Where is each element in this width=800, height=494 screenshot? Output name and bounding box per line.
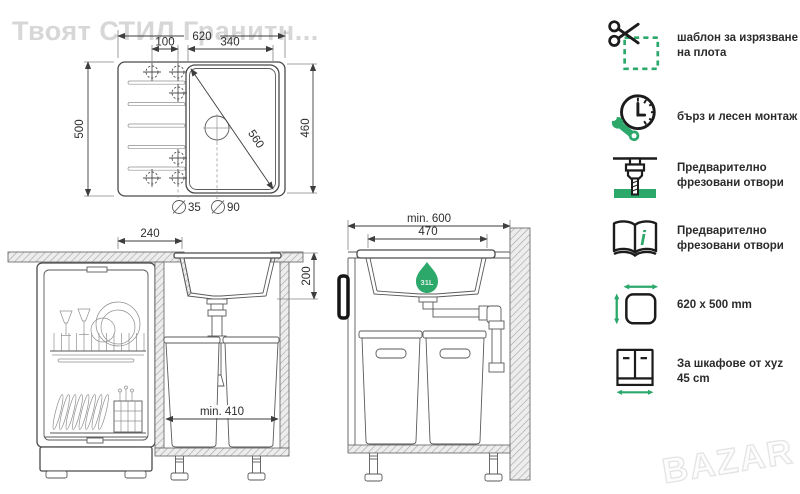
dim-100-label: 100 bbox=[155, 37, 174, 49]
features-panel: шаблон за изрязване на плота bbox=[602, 0, 800, 494]
volume-badge: 31L bbox=[416, 262, 438, 293]
front-section-drawing: 240 bbox=[8, 228, 318, 480]
feature-manual: i Предварително фрезовани отвори bbox=[602, 208, 800, 270]
feature-premilled-holes: Предварително фрезовани отвори bbox=[602, 146, 800, 206]
dia-90-label: 90 bbox=[227, 202, 240, 214]
clock-wrench-icon bbox=[602, 90, 668, 144]
dim-470-label: 470 bbox=[418, 226, 437, 238]
countertop-left bbox=[8, 252, 184, 262]
feature-text: бърз и лесен монтаж bbox=[677, 110, 799, 125]
feature-quick-install: бърз и лесен монтаж bbox=[602, 86, 800, 148]
feature-text: Предварително фрезовани отвори bbox=[677, 161, 799, 191]
technical-drawing: 560 620 100 340 bbox=[0, 0, 600, 494]
dim-460-label: 460 bbox=[300, 118, 312, 137]
feature-cabinet-size: За шкафове от xyz 45 cm bbox=[602, 340, 800, 404]
tap-hole-diameter: 35 bbox=[173, 201, 201, 215]
waste-bins-side bbox=[359, 331, 486, 444]
cabinet-legs-front bbox=[171, 456, 265, 480]
waste-bins-front bbox=[164, 337, 279, 447]
feature-text: 620 x 500 mm bbox=[677, 298, 799, 313]
dim-500-label: 500 bbox=[74, 119, 86, 138]
dim-340-label: 340 bbox=[220, 37, 239, 49]
manual-book-icon: i bbox=[602, 216, 668, 262]
cabinet-size-icon bbox=[602, 344, 668, 400]
cabinet-door-side bbox=[339, 258, 355, 445]
cabinet-bottom-side bbox=[348, 445, 510, 453]
side-section-drawing: min. 600 470 bbox=[339, 213, 530, 481]
side-wall bbox=[510, 228, 530, 480]
dim-min410-label: min. 410 bbox=[200, 406, 244, 418]
dim-width: 620 bbox=[118, 30, 285, 58]
feature-text: За шкафове от xyz 45 cm bbox=[677, 357, 799, 387]
feature-dimensions: 620 x 500 mm bbox=[602, 276, 800, 334]
info-letter: i bbox=[640, 228, 646, 250]
door-handle bbox=[339, 276, 348, 318]
cabinet-left-wall bbox=[155, 262, 164, 448]
feature-cutting-template: шаблон за изрязване на плота bbox=[602, 8, 800, 84]
dim-min600-label: min. 600 bbox=[407, 213, 451, 225]
scissors-template-icon bbox=[602, 17, 668, 75]
dishwasher-base bbox=[40, 447, 152, 471]
top-view-drawing: 560 620 100 340 bbox=[74, 30, 317, 214]
dimensions-icon bbox=[602, 279, 668, 331]
cabinet-legs-side bbox=[365, 453, 502, 481]
feature-text: Предварително фрезовани отвори bbox=[677, 224, 799, 254]
cabinet-bottom bbox=[155, 448, 289, 456]
drain-hole-diameter: 90 bbox=[212, 201, 240, 215]
dim-bowl-width-side: 470 bbox=[368, 226, 487, 248]
dim-620-label: 620 bbox=[192, 31, 211, 43]
dim-drainer-offset: 240 bbox=[118, 228, 182, 249]
dim-depth: 500 bbox=[74, 62, 114, 196]
dim-240-label: 240 bbox=[140, 228, 159, 240]
cabinet-right-wall bbox=[280, 262, 289, 448]
dia-35-label: 35 bbox=[188, 202, 201, 214]
dim-200-label: 200 bbox=[301, 266, 313, 285]
volume-label: 31L bbox=[421, 278, 434, 287]
dishwasher bbox=[37, 263, 155, 478]
dim-bowl-depth: 460 bbox=[287, 64, 317, 193]
router-bit-icon bbox=[602, 152, 668, 200]
dim-tap-spacing: 100 bbox=[152, 37, 178, 64]
feature-text: шаблон за изрязване на плота bbox=[677, 31, 799, 61]
product-spec-image: Твоят СТИЛ Гранитн... bbox=[0, 0, 800, 494]
